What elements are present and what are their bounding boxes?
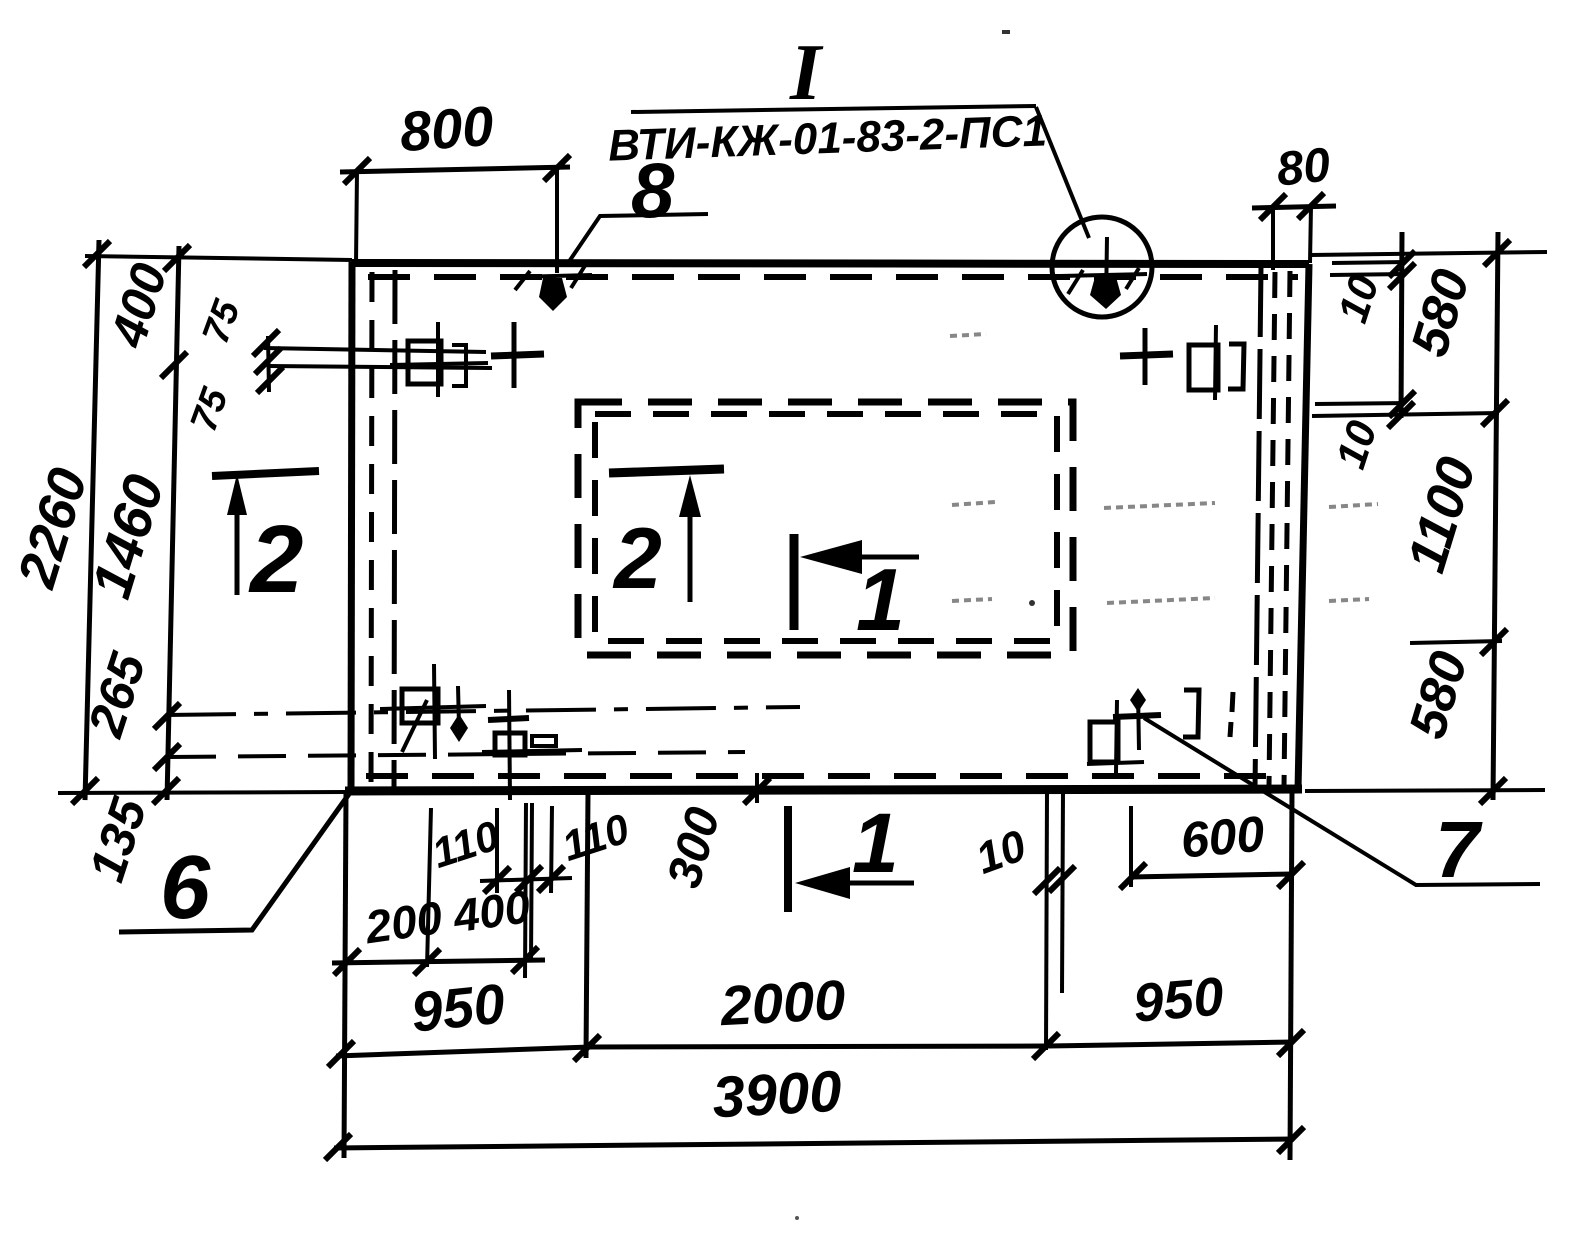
svg-text:600: 600 <box>1179 806 1267 869</box>
svg-text:950: 950 <box>408 971 508 1043</box>
svg-text:7: 7 <box>1435 805 1483 894</box>
svg-text:I: I <box>789 29 824 117</box>
svg-text:950: 950 <box>1131 966 1226 1034</box>
svg-text:2: 2 <box>248 506 303 613</box>
svg-text:2000: 2000 <box>718 968 847 1037</box>
svg-text:400: 400 <box>449 880 534 942</box>
svg-text:2: 2 <box>612 511 662 607</box>
svg-text:3900: 3900 <box>711 1059 843 1131</box>
svg-text:1: 1 <box>856 550 905 649</box>
svg-text:80: 80 <box>1274 138 1333 196</box>
svg-text:6: 6 <box>160 838 211 938</box>
svg-text:200: 200 <box>361 891 446 953</box>
svg-text:1: 1 <box>852 796 899 890</box>
svg-text:800: 800 <box>398 94 496 163</box>
